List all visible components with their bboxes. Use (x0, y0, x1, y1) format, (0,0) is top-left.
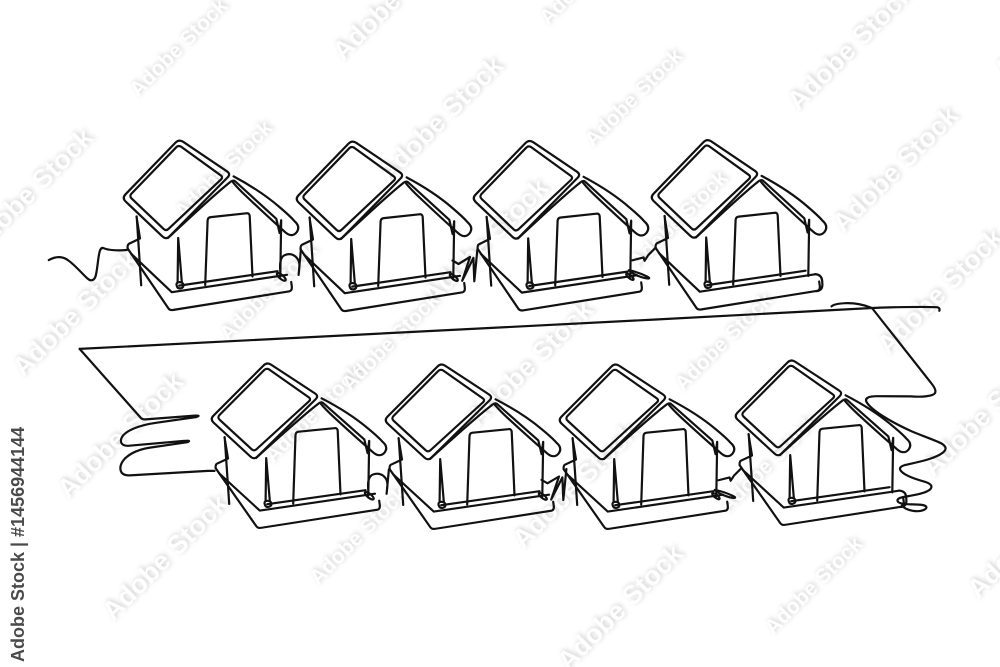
svg-text:Adobe Stock | #1456944144: Adobe Stock | #1456944144 (8, 427, 28, 662)
